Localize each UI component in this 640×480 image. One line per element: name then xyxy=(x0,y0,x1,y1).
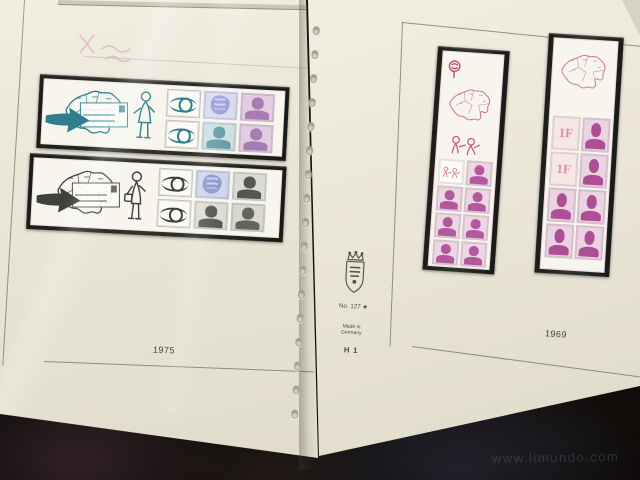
punch-hole xyxy=(299,266,306,275)
stamp-booklet-1969-left xyxy=(428,50,505,270)
king-baudouin-stamp xyxy=(579,153,609,189)
punch-hole xyxy=(302,218,309,227)
punch-hole xyxy=(307,122,314,131)
page-border-line-left xyxy=(2,0,25,365)
year-label-left: 1975 xyxy=(153,345,175,356)
king-baudouin-stamp xyxy=(465,160,493,187)
punch-hole xyxy=(304,170,311,179)
king-baudouin-stamp xyxy=(240,93,275,123)
one-franc-stamp: 1F xyxy=(551,115,581,151)
made-in-line2: Germany xyxy=(341,329,362,336)
king-baudouin-stamp xyxy=(576,189,606,225)
publisher-margin-block: No. 127 ★ Made in Germany H 1 xyxy=(327,250,380,357)
king-baudouin-stamp xyxy=(436,185,464,212)
one-franc-stamp: 1F xyxy=(549,151,579,187)
photo-of-stamp-album: 1975 No. 127 ★ Made in Germany H 1 xyxy=(0,0,640,480)
king-baudouin-stamp xyxy=(574,225,604,261)
booklet-mount-1969-right: 1F 1F xyxy=(534,33,624,277)
cartoon-postman-icon xyxy=(123,170,150,223)
king-baudouin-stamp xyxy=(544,223,574,259)
punch-hole xyxy=(291,409,298,418)
booklet-mount-1975-teal xyxy=(36,74,290,161)
stamp-grid xyxy=(156,168,267,233)
king-baudouin-stamp xyxy=(230,203,265,233)
king-baudouin-stamp xyxy=(193,201,228,231)
king-baudouin-stamp xyxy=(581,117,611,153)
king-baudouin-stamp xyxy=(201,122,236,152)
made-in-text: Made in Germany xyxy=(341,323,362,336)
belgium-map-icon xyxy=(445,79,494,132)
posthorn-stamp xyxy=(166,89,201,119)
punch-hole xyxy=(310,74,317,83)
year-label-right: 1969 xyxy=(545,328,568,340)
crest-logo-icon xyxy=(339,250,371,296)
watermark-text: www.limundo.com xyxy=(492,449,620,466)
catalog-number: No. 127 ★ xyxy=(338,303,367,311)
arrow-icon xyxy=(35,185,82,215)
stamp-grid xyxy=(164,89,275,154)
king-baudouin-stamp xyxy=(232,172,267,202)
punch-hole xyxy=(306,146,313,155)
king-baudouin-stamp xyxy=(463,187,491,214)
punch-hole xyxy=(308,98,315,107)
sheet-code: H 1 xyxy=(343,346,358,355)
cartoon-lady-icon xyxy=(131,90,158,141)
punch-hole xyxy=(312,26,319,35)
posthorn-stamp xyxy=(156,199,191,229)
punch-hole xyxy=(296,314,303,323)
punch-hole xyxy=(311,50,318,59)
arrow-icon xyxy=(44,105,91,135)
doodle-label-stamp xyxy=(437,158,465,185)
king-baudouin-stamp xyxy=(547,187,577,223)
stamp-booklet-1975-teal xyxy=(40,78,285,157)
ghost-handwriting-mark xyxy=(70,25,144,73)
lion-stamp xyxy=(195,170,230,200)
punch-hole xyxy=(298,290,305,299)
page-border-line-bottom xyxy=(44,361,314,373)
king-baudouin-stamp xyxy=(432,239,460,266)
lion-stamp xyxy=(203,91,238,121)
king-baudouin-stamp xyxy=(238,124,273,154)
king-baudouin-stamp xyxy=(462,214,490,241)
page-stack-edge xyxy=(58,0,320,10)
album-page-left: 1975 xyxy=(0,0,322,480)
king-baudouin-stamp xyxy=(460,241,488,268)
belgium-map-icon xyxy=(557,44,610,101)
punch-hole xyxy=(295,338,302,347)
booklet-mount-1975-dark xyxy=(26,153,287,242)
punch-hole xyxy=(292,385,299,394)
stamp-booklet-1969-right: 1F 1F xyxy=(540,37,619,273)
posthorn-badge-icon xyxy=(447,59,462,80)
posthorn-stamp xyxy=(158,168,193,198)
punch-hole xyxy=(300,242,307,251)
stamp-grid: 1F 1F xyxy=(544,115,611,260)
posthorn-stamp xyxy=(164,120,199,150)
punch-hole xyxy=(303,194,310,203)
stamp-booklet-1975-dark xyxy=(30,157,282,238)
punch-hole xyxy=(294,361,301,370)
stamp-grid xyxy=(432,158,493,268)
cartoon-figures-icon xyxy=(447,133,482,157)
king-baudouin-stamp xyxy=(434,212,462,239)
